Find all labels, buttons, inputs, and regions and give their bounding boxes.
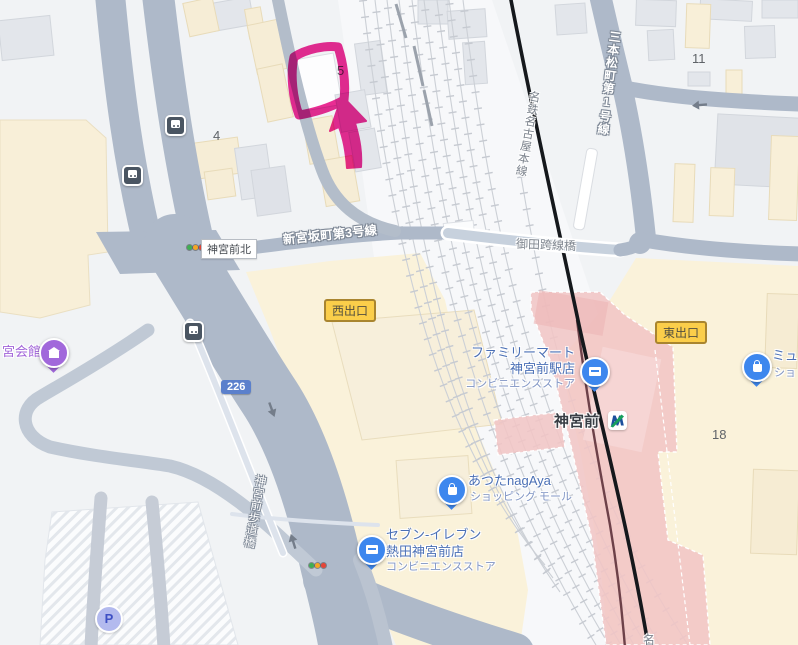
block-number-11: 11: [692, 52, 706, 67]
route-badge-226: 226: [221, 380, 251, 394]
partial-rail-label: 名: [643, 634, 655, 645]
convenience-store-icon: [366, 545, 378, 554]
poi-familymart-label[interactable]: ファミリーマート 神宮前駅店 コンビニエンスストア: [443, 345, 575, 391]
bus-icon: [128, 170, 137, 178]
bus-icon: [171, 120, 180, 128]
railway-label-meitetsu: 名鉄名古屋本線: [513, 90, 541, 178]
bus-icon: [189, 326, 198, 334]
parking-letter: P: [105, 611, 114, 626]
poi-familymart-line1: ファミリーマート: [443, 345, 575, 361]
convenience-store-icon: [589, 367, 601, 376]
bus-stop-icon[interactable]: [122, 165, 143, 186]
bus-stop-icon[interactable]: [165, 115, 186, 136]
block-number-4: 4: [213, 129, 220, 144]
poi-seveneleven-pin[interactable]: [357, 535, 387, 565]
poi-kaikan-label[interactable]: 宮会館: [2, 345, 41, 360]
poi-myu-label[interactable]: ミュ: [772, 349, 798, 364]
poi-kaikan-pin[interactable]: [39, 338, 69, 368]
poi-myu-category: ショ: [774, 367, 796, 380]
block-number-5: 5: [337, 64, 344, 79]
west-exit-badge[interactable]: 西出口: [324, 299, 376, 322]
poi-atsuta-category: ショッピング モール: [470, 491, 572, 504]
poi-seveneleven-line2: 熱田神宮前店: [386, 543, 496, 560]
block-number-18: 18: [712, 428, 726, 443]
east-exit-badge[interactable]: 東出口: [655, 321, 707, 344]
traffic-light-icon: [309, 563, 327, 569]
poi-atsuta-pin[interactable]: [437, 475, 467, 505]
poi-familymart-line2: 神宮前駅店: [443, 361, 575, 377]
poi-seveneleven-label[interactable]: セブン-イレブン 熱田神宮前店 コンビニエンスストア: [386, 526, 496, 574]
bus-stop-icon[interactable]: [183, 321, 204, 342]
map-canvas[interactable]: 宮会館 4 5 11 18 神宮前北 新宮坂町第3号線 三本松町第1号線 御田跨…: [0, 0, 798, 645]
intersection-label-jingumae-kita: 神宮前北: [201, 239, 257, 259]
meitetsu-logo[interactable]: [608, 411, 627, 430]
poi-familymart-category: コンビニエンスストア: [443, 378, 575, 391]
shopping-bag-icon: [448, 487, 457, 495]
road-label-shinmiyasaka: 新宮坂町第3号線: [263, 221, 398, 249]
poi-atsuta-label[interactable]: あつたnagAya: [468, 474, 551, 489]
road-label-pedestrian-bridge: 神宮前歩道橋: [241, 473, 267, 549]
poi-seveneleven-line1: セブン-イレブン: [386, 526, 496, 543]
parking-icon[interactable]: P: [95, 605, 123, 633]
station-name-jingumae[interactable]: 神宮前: [554, 413, 599, 430]
bridge-label-mita: 御田跨線橋: [495, 237, 597, 254]
poi-familymart-pin[interactable]: [580, 357, 610, 387]
poi-seveneleven-category: コンビニエンスストア: [386, 561, 496, 574]
shopping-bag-icon: [753, 364, 762, 372]
building-icon: [49, 351, 59, 358]
road-label-sanbonmatsu: 三本松町第1号線: [595, 30, 622, 137]
poi-myu-pin[interactable]: [742, 352, 772, 382]
